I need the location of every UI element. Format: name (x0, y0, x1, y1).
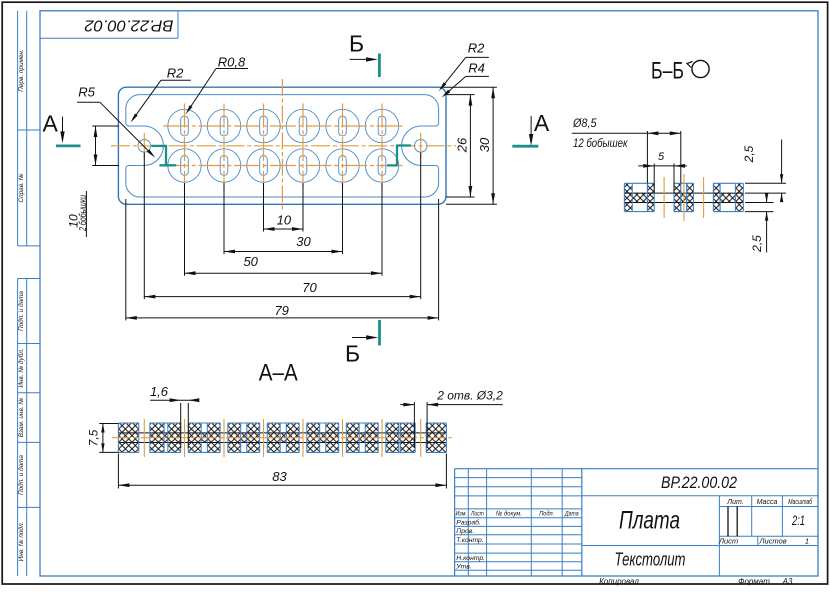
svg-text:Инв. № подл.: Инв. № подл. (17, 522, 25, 562)
svg-text:30: 30 (296, 234, 311, 249)
svg-text:2,5: 2,5 (750, 235, 764, 253)
svg-text:Подп. и дата: Подп. и дата (17, 291, 25, 331)
svg-text:А3: А3 (782, 577, 793, 586)
svg-text:30: 30 (477, 137, 492, 152)
svg-text:26: 26 (454, 137, 469, 153)
svg-text:2 бобышки: 2 бобышки (77, 195, 89, 232)
svg-text:R2: R2 (468, 41, 485, 56)
svg-text:Лист: Лист (718, 537, 738, 546)
svg-text:Масса: Масса (757, 499, 778, 506)
svg-text:А–А: А–А (259, 360, 298, 387)
svg-text:Утв.: Утв. (455, 563, 472, 570)
svg-text:2 отв. Ø3,2: 2 отв. Ø3,2 (436, 389, 503, 403)
svg-text:Копировал: Копировал (599, 577, 639, 586)
svg-text:Б: Б (345, 341, 360, 367)
svg-text:R0,8: R0,8 (218, 55, 246, 70)
svg-text:Ø8,5: Ø8,5 (572, 116, 597, 130)
svg-text:R4: R4 (468, 61, 485, 76)
svg-text:Формат: Формат (738, 577, 770, 586)
svg-text:Текстолит: Текстолит (615, 549, 686, 570)
svg-text:50: 50 (243, 254, 258, 269)
svg-text:Масштаб: Масштаб (788, 498, 813, 506)
svg-text:Перв. примен.: Перв. примен. (18, 49, 25, 91)
svg-text:№ докум.: № докум. (496, 510, 522, 518)
svg-text:Б–Б: Б–Б (651, 58, 684, 85)
svg-text:Разраб.: Разраб. (456, 518, 481, 526)
svg-text:ВР.22.00.02: ВР.22.00.02 (661, 474, 737, 492)
svg-text:Листов: Листов (758, 537, 786, 546)
svg-text:5: 5 (658, 151, 665, 163)
svg-text:Инв. № дубл.: Инв. № дубл. (17, 348, 25, 387)
svg-text:Б: Б (349, 31, 364, 57)
svg-text:10: 10 (277, 213, 292, 228)
svg-text:Подп.: Подп. (539, 510, 554, 518)
svg-text:12 бобышек: 12 бобышек (573, 136, 629, 150)
svg-text:1: 1 (805, 537, 809, 546)
svg-text:Изм.: Изм. (455, 511, 467, 518)
svg-text:2,5: 2,5 (742, 145, 756, 163)
svg-text:ВР.22.00.02: ВР.22.00.02 (84, 17, 173, 34)
svg-text:2:1: 2:1 (791, 512, 805, 528)
svg-text:R2: R2 (167, 66, 184, 81)
svg-text:70: 70 (302, 280, 317, 295)
svg-text:79: 79 (274, 303, 288, 318)
svg-text:Взам. инв. №: Взам. инв. № (18, 398, 25, 438)
svg-text:Плата: Плата (619, 507, 680, 535)
svg-text:83: 83 (272, 469, 287, 484)
svg-text:1,6: 1,6 (150, 384, 169, 399)
svg-text:Дата: Дата (564, 511, 578, 518)
svg-text:7,5: 7,5 (87, 429, 101, 446)
svg-text:Лист: Лист (470, 511, 484, 518)
svg-text:R5: R5 (78, 85, 95, 100)
svg-text:А: А (534, 110, 550, 136)
svg-text:Справ. №: Справ. № (18, 173, 25, 202)
svg-text:Н.контр.: Н.контр. (456, 555, 485, 562)
svg-text:Т.контр.: Т.контр. (456, 537, 484, 544)
svg-text:Лит.: Лит. (726, 499, 743, 506)
svg-text:Пров.: Пров. (456, 528, 474, 535)
svg-text:Подп. и дата: Подп. и дата (17, 455, 25, 495)
svg-text:А: А (43, 111, 59, 137)
